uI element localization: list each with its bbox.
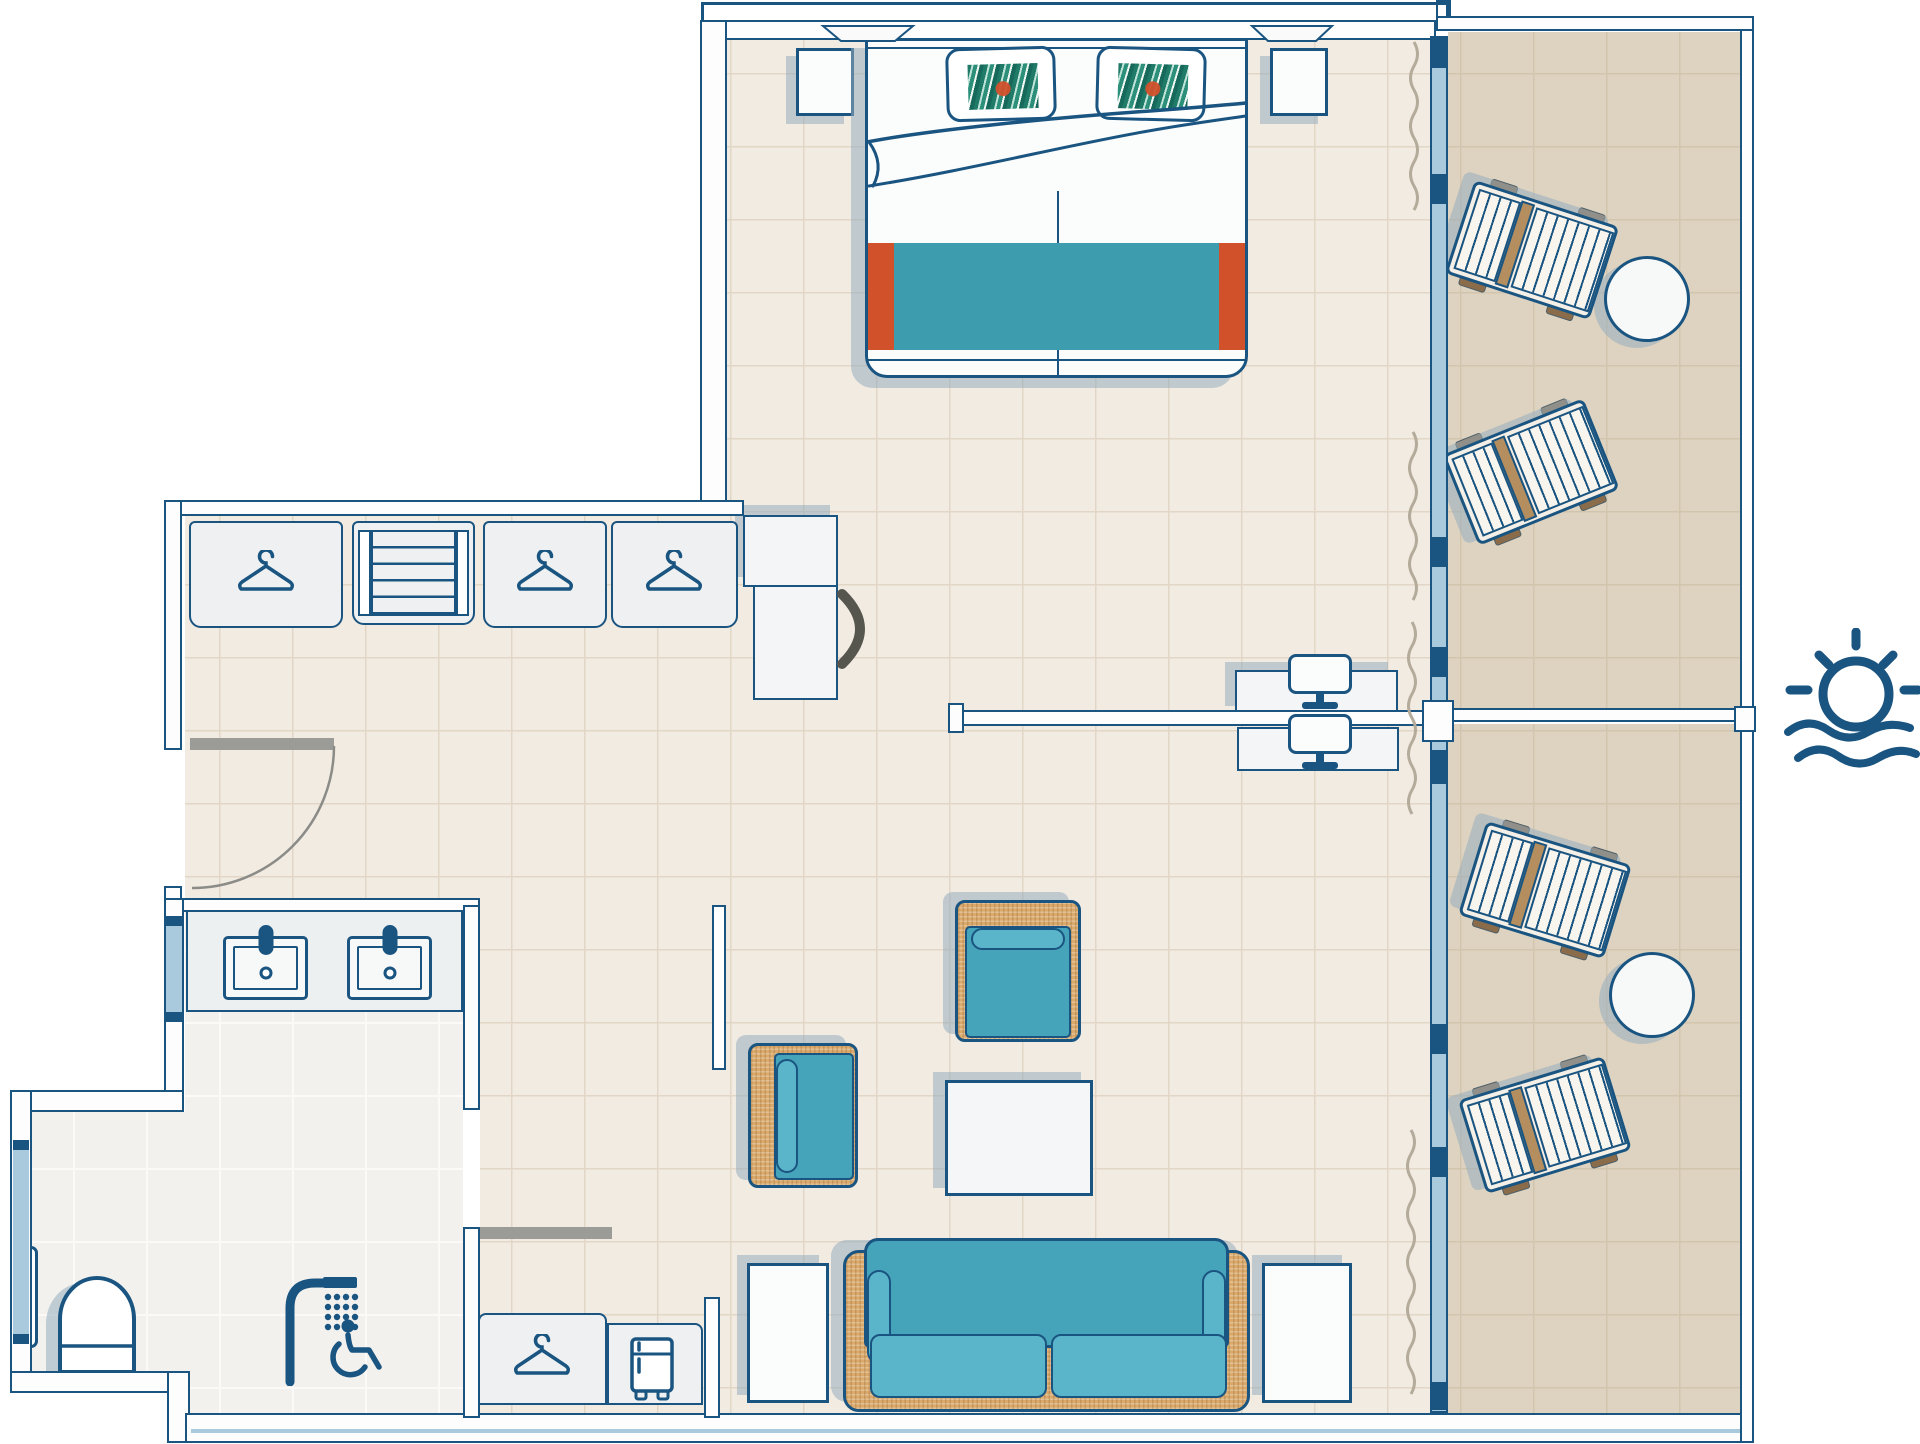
pillow-left bbox=[945, 46, 1057, 123]
wall-desk-divider bbox=[955, 710, 1432, 726]
nightstand-left bbox=[796, 48, 854, 116]
bed-frame-line bbox=[868, 359, 1245, 361]
glass-joint bbox=[1430, 174, 1448, 204]
wheelchair-icon bbox=[324, 1318, 386, 1384]
chair-base bbox=[1302, 762, 1338, 769]
glass-joint bbox=[1430, 1147, 1448, 1177]
tv-sideboard-upper bbox=[743, 515, 838, 587]
glass-joint bbox=[1430, 537, 1448, 567]
desk-chair-lower bbox=[1288, 714, 1352, 772]
chair-seat bbox=[1288, 714, 1352, 754]
chair-base bbox=[1302, 702, 1338, 709]
balcony-table-lower bbox=[1609, 952, 1695, 1038]
wall-bedroom-top bbox=[700, 20, 1436, 40]
wall-balcony-divider-tick bbox=[1734, 706, 1756, 732]
sliding-door-leaf bbox=[480, 1227, 612, 1239]
wall-wc-top bbox=[10, 1090, 184, 1112]
glass-joint bbox=[1430, 647, 1448, 677]
nightstand-right bbox=[1270, 48, 1328, 116]
desk-chair-upper bbox=[1288, 654, 1352, 712]
fridge-icon bbox=[628, 1336, 678, 1402]
sun-over-sea-icon bbox=[1782, 628, 1920, 780]
double-bed bbox=[865, 38, 1248, 378]
window-cap bbox=[13, 1140, 29, 1150]
toilet-icon bbox=[42, 1260, 146, 1382]
side-table-right bbox=[1262, 1263, 1352, 1403]
wall-desk-divider-cap bbox=[948, 703, 964, 733]
bed-runner-trim-left bbox=[868, 243, 894, 350]
side-table-left bbox=[747, 1263, 829, 1403]
wall-balcony-divider bbox=[1448, 708, 1742, 722]
glass-wall-junction bbox=[1422, 700, 1454, 742]
faucet-icon bbox=[258, 925, 273, 955]
hanger-icon bbox=[510, 1334, 574, 1380]
glass-joint bbox=[1430, 1024, 1448, 1054]
tv-sideboard-lower bbox=[753, 585, 838, 700]
outer-boundary-top bbox=[701, 2, 1449, 5]
wardrobe-shelves bbox=[352, 521, 475, 625]
window-cap bbox=[166, 916, 182, 926]
hanger-icon bbox=[234, 550, 298, 596]
wall-bathroom-top bbox=[164, 898, 480, 912]
hanger-icon bbox=[513, 550, 577, 596]
partition-stub bbox=[712, 905, 726, 1070]
bottom-wall-glass-line bbox=[191, 1429, 1748, 1433]
armchair-back-pillow bbox=[776, 1059, 798, 1173]
entrance-door-leaf bbox=[190, 738, 334, 750]
chair-seat bbox=[1288, 654, 1352, 694]
coffee-table bbox=[945, 1080, 1093, 1196]
window-cap bbox=[166, 1012, 182, 1022]
sofa bbox=[843, 1238, 1250, 1414]
wall-bathroom-right-lower bbox=[463, 1227, 480, 1418]
pillow-print bbox=[967, 63, 1038, 110]
window-cap bbox=[13, 1334, 29, 1344]
pillow-right bbox=[1095, 46, 1207, 123]
bed-runner-trim-right bbox=[1219, 243, 1245, 350]
glass-joint bbox=[1430, 750, 1448, 784]
pillow-print bbox=[1117, 63, 1188, 110]
wall-left-upper bbox=[164, 500, 182, 750]
faucet-icon bbox=[382, 925, 397, 955]
floor-plan bbox=[0, 0, 1920, 1444]
sink-right bbox=[347, 936, 432, 1000]
sofa-seat-cushion-left bbox=[870, 1334, 1047, 1398]
wall-bottom-main bbox=[185, 1413, 1754, 1443]
armchair-back-pillow bbox=[971, 928, 1065, 950]
wall-living-stub bbox=[704, 1297, 720, 1418]
drain-icon bbox=[383, 966, 396, 979]
wall-corridor-top bbox=[164, 500, 744, 516]
glass-joint bbox=[1430, 38, 1448, 68]
sofa-back bbox=[864, 1238, 1229, 1348]
armchair-left bbox=[748, 1043, 858, 1188]
balcony-table-upper bbox=[1604, 256, 1690, 342]
hanger-icon bbox=[642, 550, 706, 596]
vanity-counter bbox=[186, 910, 463, 1012]
drain-icon bbox=[259, 966, 272, 979]
wall-bathroom-right-upper bbox=[463, 905, 480, 1110]
wall-balcony-top bbox=[1436, 16, 1754, 31]
shelf-slats bbox=[371, 530, 456, 616]
wall-bedroom-left bbox=[700, 20, 727, 512]
armchair-top bbox=[955, 900, 1081, 1042]
sink-left bbox=[223, 936, 308, 1000]
shelf-rail-left bbox=[358, 530, 371, 616]
glass-joint bbox=[1430, 1382, 1448, 1410]
sofa-seat-cushion-right bbox=[1051, 1334, 1227, 1398]
wc-window bbox=[13, 1150, 29, 1334]
bed-runner bbox=[868, 243, 1245, 350]
balcony-upper-floor bbox=[1448, 32, 1740, 710]
shelf-rail-right bbox=[456, 530, 469, 616]
bathroom-window bbox=[166, 926, 182, 1012]
wall-wc-bottom bbox=[10, 1371, 190, 1393]
